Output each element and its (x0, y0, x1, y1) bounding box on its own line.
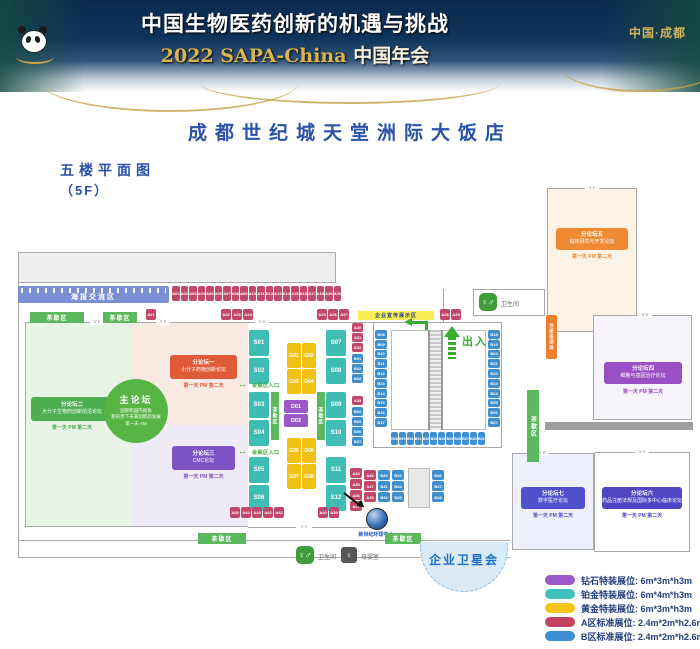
booth-B43: B43 (392, 470, 404, 480)
booth-A42: A42 (263, 507, 273, 518)
booth-G05: G05 (287, 438, 301, 463)
booth-A32: A32 (352, 343, 363, 352)
booth-A48: A48 (364, 492, 376, 502)
booth-B36: B36 (454, 432, 461, 445)
booth-B14: B14 (375, 389, 387, 398)
escalator (428, 330, 443, 430)
booth-B35: B35 (446, 432, 453, 445)
booth-B28: B28 (391, 432, 398, 445)
booth-B47: B47 (432, 481, 444, 491)
booth-col-s-left2: S03S04 (249, 392, 269, 446)
booth-B24: B24 (488, 389, 500, 398)
booth-A33: A33 (352, 396, 363, 405)
booth-A23: A23 (232, 309, 242, 320)
main-forum-circle: 主论坛 国际和国内视角 新形势下未来创新药发展 第一天 AM (104, 379, 168, 443)
booth-col-sat-b3: B46B47B48 (432, 470, 444, 502)
booth-A24: A24 (243, 309, 253, 320)
booth-B06: B06 (352, 427, 363, 436)
booth-B37: B37 (462, 432, 469, 445)
turn-arrow-icon (404, 318, 412, 326)
booth-B02: B02 (352, 364, 363, 373)
booth-A07: A07 (223, 286, 231, 301)
landmark-globe-icon (366, 508, 388, 530)
booth-A21: A21 (146, 309, 156, 320)
booth-B31: B31 (415, 432, 422, 445)
booth-A39: A39 (329, 507, 339, 518)
door-notch: ∨∨ (255, 320, 269, 325)
booth-col-s-left1: S01S02 (249, 330, 269, 384)
registration-tag: 注册签到处 (546, 315, 557, 359)
tea-break-bar-vertical: 茶歇区 (271, 392, 279, 440)
booth-B18: B18 (488, 330, 500, 339)
door-notch: ∨∨ (635, 450, 649, 455)
booth-A18: A18 (317, 286, 325, 301)
expo-entrance-label: 会展区入口 (252, 449, 280, 456)
gold-mountain-decoration (200, 62, 500, 104)
booth-A40: A40 (318, 507, 328, 518)
booth-B04: B04 (352, 407, 363, 416)
gold-mountain-decoration (560, 40, 700, 92)
booth-B41: B41 (378, 481, 390, 491)
booth-col-s-right1: S07S08 (326, 330, 346, 384)
booth-col-hall-right: B18B19B20B21B22B23B24B25B26B27 (488, 330, 500, 427)
legend-label: 黄金特装展位: 6m*3m*h3m (581, 602, 692, 615)
legend-swatch (545, 575, 575, 585)
booth-B26: B26 (488, 408, 500, 417)
booth-A10: A10 (249, 286, 257, 301)
booth-A06: A06 (215, 286, 223, 301)
tea-break-bar: 茶歇区 (30, 312, 84, 323)
satellite-meeting-label: 企业卫星会 (429, 551, 499, 568)
legend-row: 铂金特装展位: 6m*4m*h3m (545, 587, 700, 601)
booth-B46: B46 (432, 470, 444, 480)
booth-S05: S05 (249, 457, 269, 483)
panda-logo-icon (18, 26, 54, 68)
booth-B17: B17 (375, 418, 387, 427)
nursing-room-icon: ♀ (341, 547, 357, 563)
entrance-arrow-stem (448, 337, 456, 359)
booth-B19: B19 (488, 340, 500, 349)
booth-B20: B20 (488, 350, 500, 359)
poster-zone-bar: 海报交流区 (18, 286, 169, 303)
booth-A35: A35 (350, 479, 362, 489)
booth-B25: B25 (488, 399, 500, 408)
booth-col-strip-a1: A30A31A32 (352, 323, 363, 352)
booth-A25: A25 (317, 309, 327, 320)
pillar (408, 468, 430, 508)
floor-label-line2: （5F） (60, 180, 109, 199)
booth-S04: S04 (249, 420, 269, 446)
booth-B44: B44 (392, 481, 404, 491)
booth-col-s-left3: S05S06 (249, 457, 269, 511)
legend-swatch (545, 603, 575, 613)
booth-B38: B38 (470, 432, 477, 445)
left-outer-wall (18, 283, 19, 558)
booth-B39: B39 (478, 432, 485, 445)
booth-A45: A45 (230, 507, 240, 518)
booth-A22: A22 (221, 309, 231, 320)
booth-B30: B30 (407, 432, 414, 445)
booth-B08: B08 (375, 330, 387, 339)
booth-row-a-bottom: A45A44A43A42A41 (230, 507, 284, 518)
banner-location: 中国·成都 (629, 24, 686, 41)
legend-swatch (545, 631, 575, 641)
banner-title-line1: 中国生物医药创新的机遇与挑战 (95, 8, 495, 38)
booth-A29: A29 (451, 309, 461, 320)
nursing-room-label: 母婴室 (361, 552, 379, 561)
booth-col-strip-b1: B01B02B03 (352, 354, 363, 383)
door-notch: ∨∨ (296, 525, 312, 530)
booth-G06: G06 (302, 438, 316, 463)
restroom-icon: ♀♂ (479, 293, 497, 311)
banner-title-year: 2022 SAPA-China (161, 45, 347, 67)
forum2-time: 第一天 PM 第二天 (31, 424, 113, 431)
booth-G01: G01 (287, 343, 301, 368)
booth-a21: A21 (146, 309, 156, 320)
booth-A30: A30 (352, 323, 363, 332)
booth-B27: B27 (488, 418, 500, 427)
legend: 钻石特装展位: 6m*3m*h3m铂金特装展位: 6m*4m*h3m黄金特装展位… (545, 573, 700, 643)
booth-G08: G08 (302, 464, 316, 489)
tea-break-bar-vertical: 茶歇区 (317, 392, 325, 440)
booth-row-a-trio1: A22A23A24 (221, 309, 253, 320)
banner-title-cn: 中国年会 (353, 45, 429, 67)
booth-B01: B01 (352, 354, 363, 363)
booth-G04: G04 (302, 369, 316, 394)
banner-title-line2: 2022 SAPA-China 中国年会 (95, 41, 495, 68)
booth-A03: A03 (189, 286, 197, 301)
forum5-time: 第一天 PM 第二天 (556, 253, 628, 260)
booth-col-sat-b1: B40B41B42 (378, 470, 390, 502)
booth-A17: A17 (308, 286, 316, 301)
booth-A28: A28 (440, 309, 450, 320)
booth-A26: A26 (328, 309, 338, 320)
booth-G02: G02 (302, 343, 316, 368)
booth-B42: B42 (378, 492, 390, 502)
booth-B16: B16 (375, 408, 387, 417)
booth-B48: B48 (432, 492, 444, 502)
legend-row: 钻石特装展位: 6m*3m*h3m (545, 573, 700, 587)
expo-entrance-label: 会展区入口 (252, 382, 280, 389)
tea-break-bar: 茶歇区 (103, 312, 137, 323)
tea-break-bar: 茶歇区 (198, 533, 246, 544)
promo-zone-bar: 企业宣传展示区 (358, 311, 434, 320)
booth-A12: A12 (266, 286, 274, 301)
legend-label: 钻石特装展位: 6m*3m*h3m (581, 574, 692, 587)
forum7-time: 第一天 PM 第二天 (521, 512, 585, 519)
booth-S01: S01 (249, 330, 269, 356)
legend-row: 黄金特装展位: 6m*3m*h3m (545, 601, 700, 615)
booth-A19: A19 (325, 286, 333, 301)
booth-A16: A16 (300, 286, 308, 301)
booth-S11: S11 (326, 457, 346, 483)
booth-B23: B23 (488, 379, 500, 388)
booth-B40: B40 (378, 470, 390, 480)
booth-G07: G07 (287, 464, 301, 489)
booth-B21: B21 (488, 359, 500, 368)
hotel-title: 成都世纪城天堂洲际大饭店 (0, 118, 700, 145)
booth-B15: B15 (375, 399, 387, 408)
booth-S07: S07 (326, 330, 346, 356)
tea-break-bar: 茶歇区 (385, 533, 421, 544)
booth-B45: B45 (392, 492, 404, 502)
entrance-arrow-icon (444, 326, 460, 337)
forum3-box: 分论坛三CMC论坛 (172, 446, 235, 470)
booth-B10: B10 (375, 350, 387, 359)
booth-B03: B03 (352, 374, 363, 383)
booth-row-g4: G07G08 (287, 464, 316, 489)
booth-B05: B05 (352, 417, 363, 426)
booth-A31: A31 (352, 333, 363, 342)
door-notch: ∨∨ (90, 320, 104, 325)
forum1-time: 第一天 PM 第二天 (170, 382, 237, 389)
legend-label: A区标准展位: 2.4m*2m*h2.6m (581, 616, 700, 629)
booth-row-g2: G03G04 (287, 369, 316, 394)
forum2-box: 分论坛二大分子生物药创新前沿论坛 (31, 397, 113, 421)
booth-col-sat-b2: B43B44B45 (392, 470, 404, 502)
right-gray-wall (545, 422, 693, 430)
booth-S08: S08 (326, 358, 346, 384)
forum5-room (547, 188, 637, 332)
booth-row-a-trio2: A25A26A27 (317, 309, 349, 320)
booth-A13: A13 (274, 286, 282, 301)
booth-S03: S03 (249, 392, 269, 418)
booth-col-d: D01D02 (284, 400, 308, 427)
booth-A09: A09 (240, 286, 248, 301)
booth-B13: B13 (375, 379, 387, 388)
booth-S09: S09 (326, 392, 346, 418)
booth-col-strip-a2: A33 (352, 396, 363, 405)
booth-D01: D01 (284, 400, 308, 413)
booth-col-s-right3: S11S12 (326, 457, 346, 511)
booth-A14: A14 (283, 286, 291, 301)
booth-row-a-top: A01A02A03A04A05A06A07A08A09A10A11A12A13A… (172, 286, 341, 301)
banner-titles: 中国生物医药创新的机遇与挑战 2022 SAPA-China 中国年会 (95, 8, 495, 68)
booth-col-hall-left: B08B09B10B11B12B13B14B15B16B17 (375, 330, 387, 427)
satellite-meeting-area: 企业卫星会 (420, 542, 508, 592)
booth-B32: B32 (423, 432, 430, 445)
booth-row-hall-bottom: B28B29B30B31B32B33B34B35B36B37B38B39 (391, 432, 485, 445)
forum3-time: 第一天 PM 第二天 (172, 473, 235, 480)
booth-A01: A01 (172, 286, 180, 301)
booth-row-a-bottom-pair: A40A39 (318, 507, 339, 518)
booth-A47: A47 (364, 481, 376, 491)
restroom-label: 卫生间 (318, 552, 336, 561)
booth-B12: B12 (375, 369, 387, 378)
booth-A41: A41 (274, 507, 284, 518)
forum1-box: 分论坛一小分子药物创新论坛 (170, 355, 237, 379)
booth-A46: A46 (364, 470, 376, 480)
booth-A15: A15 (291, 286, 299, 301)
booth-A27: A27 (339, 309, 349, 320)
legend-row: A区标准展位: 2.4m*2m*h2.6m (545, 615, 700, 629)
booth-row-a-pair: A28A29 (440, 309, 461, 320)
tea-break-bar-vertical: 茶歇区 (527, 390, 539, 462)
expo-entrance-arrow-icon: ↔ (238, 379, 247, 389)
forum4-time: 第一天 PM 第二天 (604, 388, 682, 395)
booth-A05: A05 (206, 286, 214, 301)
turn-arrow-stub (425, 321, 428, 330)
top-left-room (18, 252, 336, 283)
booth-B11: B11 (375, 359, 387, 368)
booth-G03: G03 (287, 369, 301, 394)
booth-A04: A04 (198, 286, 206, 301)
poster-zone-label: 海报交流区 (71, 292, 116, 302)
booth-A34: A34 (350, 468, 362, 478)
booth-D02: D02 (284, 414, 308, 427)
legend-swatch (545, 589, 575, 599)
booth-A11: A11 (257, 286, 265, 301)
booth-S10: S10 (326, 420, 346, 446)
booth-B22: B22 (488, 369, 500, 378)
forum7-box: 分论坛七数字医疗论坛 (521, 487, 585, 509)
booth-S02: S02 (249, 358, 269, 384)
forum6-box: 分论坛六药品注册法规及国际多中心临床论坛 (602, 487, 682, 509)
legend-label: B区标准展位: 2.4m*2m*h2.6m (581, 630, 700, 643)
forum6-time: 第一天 PM 第二天 (602, 512, 682, 519)
restroom-label: 卫生间 (501, 299, 519, 308)
booth-B29: B29 (399, 432, 406, 445)
booth-A20: A20 (334, 286, 342, 301)
booth-row-g1: G01G02 (287, 343, 316, 368)
booth-col-s-right2: S09S10 (326, 392, 346, 446)
booth-A02: A02 (181, 286, 189, 301)
legend-swatch (545, 617, 575, 627)
floor-label-line1: 五楼平面图 (60, 160, 155, 180)
door-notch: ∨∨ (585, 186, 599, 191)
booth-A43: A43 (252, 507, 262, 518)
forum5-box: 分论坛五临床研究与开发论坛 (556, 228, 628, 250)
booth-A08: A08 (232, 286, 240, 301)
booth-col-strip-b2: B04B05B06B07 (352, 407, 363, 446)
expo-entrance-arrow-icon: ↔ (238, 446, 247, 456)
forum4-box: 分论坛四细胞与基因治疗论坛 (604, 362, 682, 384)
booth-B09: B09 (375, 340, 387, 349)
legend-row: B区标准展位: 2.4m*2m*h2.6m (545, 629, 700, 643)
door-notch: ∨∨ (638, 313, 652, 318)
door-notch: ∨∨ (156, 320, 170, 325)
booth-col-sat-a2: A46A47A48 (364, 470, 376, 502)
booth-A44: A44 (241, 507, 251, 518)
legend-label: 铂金特装展位: 6m*4m*h3m (581, 588, 692, 601)
booth-B33: B33 (430, 432, 437, 445)
booth-B34: B34 (438, 432, 445, 445)
booth-row-g3: G05G06 (287, 438, 316, 463)
booth-B07: B07 (352, 437, 363, 446)
restroom-icon: ♀♂ (296, 546, 314, 564)
